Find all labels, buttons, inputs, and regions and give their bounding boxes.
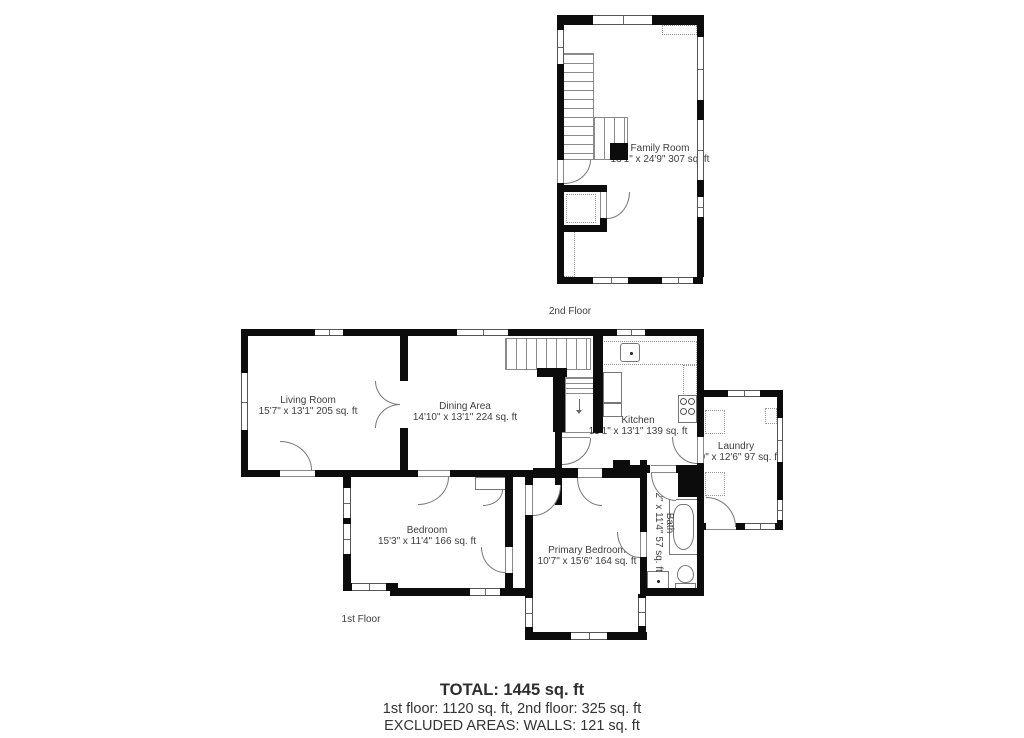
wall xyxy=(343,583,352,591)
window xyxy=(241,373,248,430)
sink-drain xyxy=(657,580,660,583)
closet-wall xyxy=(600,218,607,232)
dryer xyxy=(705,472,725,496)
door-opening xyxy=(640,532,647,557)
stair-down-arrow xyxy=(579,399,580,410)
door-opening xyxy=(505,547,513,573)
wall xyxy=(676,465,704,473)
window xyxy=(315,329,343,336)
burner xyxy=(688,398,695,405)
wall xyxy=(630,465,650,473)
burner xyxy=(680,398,687,405)
room-dims: 10'7" x 15'6" 164 sq. ft xyxy=(538,556,637,567)
wall xyxy=(736,523,745,530)
total-area: TOTAL: 1445 sq. ft xyxy=(0,681,1024,700)
door-arc xyxy=(418,477,449,505)
wall xyxy=(697,15,704,37)
kitchen-counter-top xyxy=(602,341,697,365)
wall xyxy=(400,336,408,381)
window xyxy=(525,598,533,627)
wall xyxy=(640,588,704,596)
window xyxy=(343,524,351,554)
wall xyxy=(593,336,603,433)
room-name: Dining Area xyxy=(413,401,517,412)
wall xyxy=(697,180,704,197)
door-arc xyxy=(280,441,312,470)
door-opening xyxy=(280,470,315,477)
wall xyxy=(697,217,704,277)
washer xyxy=(705,410,725,434)
wall xyxy=(505,477,513,547)
window xyxy=(470,588,500,596)
door-arc xyxy=(607,192,630,219)
door-opening xyxy=(578,468,602,478)
wall xyxy=(343,554,351,583)
closet-wall xyxy=(600,185,607,192)
room-name: Kitchen xyxy=(589,415,688,426)
window xyxy=(457,329,508,336)
room-dims: 15'3" x 11'4" 166 sq. ft xyxy=(378,536,476,547)
door-opening xyxy=(418,470,450,477)
window xyxy=(662,277,693,284)
window xyxy=(745,523,775,530)
wall xyxy=(775,523,783,530)
room-dims: 15'7" x 13'1" 205 sq. ft xyxy=(259,406,358,417)
door-arc xyxy=(375,381,400,405)
room-name: Laundry xyxy=(692,441,780,452)
wall xyxy=(697,100,704,120)
room-label-dining-area: Dining Area 14'10" x 13'1" 224 sq. ft xyxy=(413,401,517,423)
burner xyxy=(688,408,695,415)
stair-newel-block xyxy=(610,143,628,160)
room-dims: 14'10" x 13'1" 224 sq. ft xyxy=(413,412,517,423)
sink-drain xyxy=(630,352,633,355)
wall xyxy=(343,477,351,488)
window xyxy=(777,500,783,520)
door-opening xyxy=(557,160,564,183)
door-arc xyxy=(564,160,591,184)
wall xyxy=(408,470,418,477)
door-arc xyxy=(481,547,505,573)
window xyxy=(777,418,783,462)
burner xyxy=(680,408,687,415)
wall xyxy=(557,15,564,30)
door-arc xyxy=(706,497,736,527)
wall xyxy=(553,368,565,432)
wall xyxy=(390,588,470,596)
wall xyxy=(315,470,408,477)
window xyxy=(593,277,628,284)
kitchen-counter-right xyxy=(683,365,697,396)
wall xyxy=(505,573,513,590)
room-label-living-room: Living Room 15'7" x 13'1" 205 sq. ft xyxy=(259,395,358,417)
wall xyxy=(777,462,783,500)
wall xyxy=(638,626,646,640)
closet-rod-area xyxy=(566,194,596,223)
shelf-area-top-right xyxy=(662,25,697,35)
wall-block xyxy=(613,460,630,473)
window xyxy=(343,488,351,518)
wall xyxy=(400,428,408,470)
shelf-area-left xyxy=(563,230,575,277)
window xyxy=(571,632,607,640)
room-dims: 13'1" x 13'1" 139 sq. ft xyxy=(589,426,688,437)
wall xyxy=(697,390,728,397)
caption-second-floor: 2nd Floor xyxy=(549,306,591,317)
caption-first-floor: 1st Floor xyxy=(342,614,381,625)
room-label-laundry: Laundry 7'9" x 12'6" 97 sq. ft xyxy=(692,441,780,463)
bathtub-basin xyxy=(673,504,694,550)
door-opening xyxy=(525,485,533,515)
window xyxy=(593,15,652,25)
wall xyxy=(241,470,280,477)
room-dims: 7'9" x 12'6" 97 sq. ft xyxy=(692,452,780,463)
wall xyxy=(557,277,593,284)
wall xyxy=(557,64,564,160)
room-name: Bedroom xyxy=(378,525,476,536)
excluded-areas: EXCLUDED AREAS: WALLS: 121 sq. ft xyxy=(0,719,1024,734)
stairs-first-floor xyxy=(505,338,591,370)
wall xyxy=(652,15,703,25)
wall xyxy=(693,277,703,284)
wall-block xyxy=(678,473,698,497)
window xyxy=(617,329,645,336)
room-name: Living Room xyxy=(259,395,358,406)
wall xyxy=(777,390,783,418)
wall xyxy=(697,329,704,437)
window xyxy=(697,37,704,100)
door-arc xyxy=(483,490,503,506)
door-opening xyxy=(600,192,607,218)
kitchen-sink xyxy=(620,343,640,362)
window xyxy=(638,598,646,626)
toilet xyxy=(677,565,694,583)
wall xyxy=(628,277,662,284)
refrigerator xyxy=(603,372,622,403)
wall xyxy=(525,632,571,640)
window xyxy=(352,583,386,591)
door-arc xyxy=(672,437,697,464)
stairs-second-floor xyxy=(563,53,594,160)
door-opening xyxy=(697,437,704,463)
floor-plan-page: Family Room 13'1" x 24'9" 307 sq. ft 2nd… xyxy=(0,0,1024,738)
window xyxy=(728,390,760,397)
door-arc xyxy=(577,478,602,506)
window xyxy=(697,120,704,180)
door-arc xyxy=(533,485,561,516)
stair-down-arrowhead xyxy=(576,410,582,414)
door-arc xyxy=(375,404,400,428)
wall xyxy=(697,523,706,530)
room-label-bedroom: Bedroom 15'3" x 11'4" 166 sq. ft xyxy=(378,525,476,547)
window xyxy=(557,30,564,64)
laundry-cabinet xyxy=(765,408,777,424)
window xyxy=(697,197,704,217)
floor-areas: 1st floor: 1120 sq. ft, 2nd floor: 325 s… xyxy=(0,702,1024,717)
door-opening xyxy=(651,465,676,473)
area-summary: TOTAL: 1445 sq. ft 1st floor: 1120 sq. f… xyxy=(0,681,1024,733)
door-arc xyxy=(562,438,591,465)
room-label-kitchen: Kitchen 13'1" x 13'1" 139 sq. ft xyxy=(589,415,688,437)
stairs-first-floor-lower xyxy=(565,377,594,394)
